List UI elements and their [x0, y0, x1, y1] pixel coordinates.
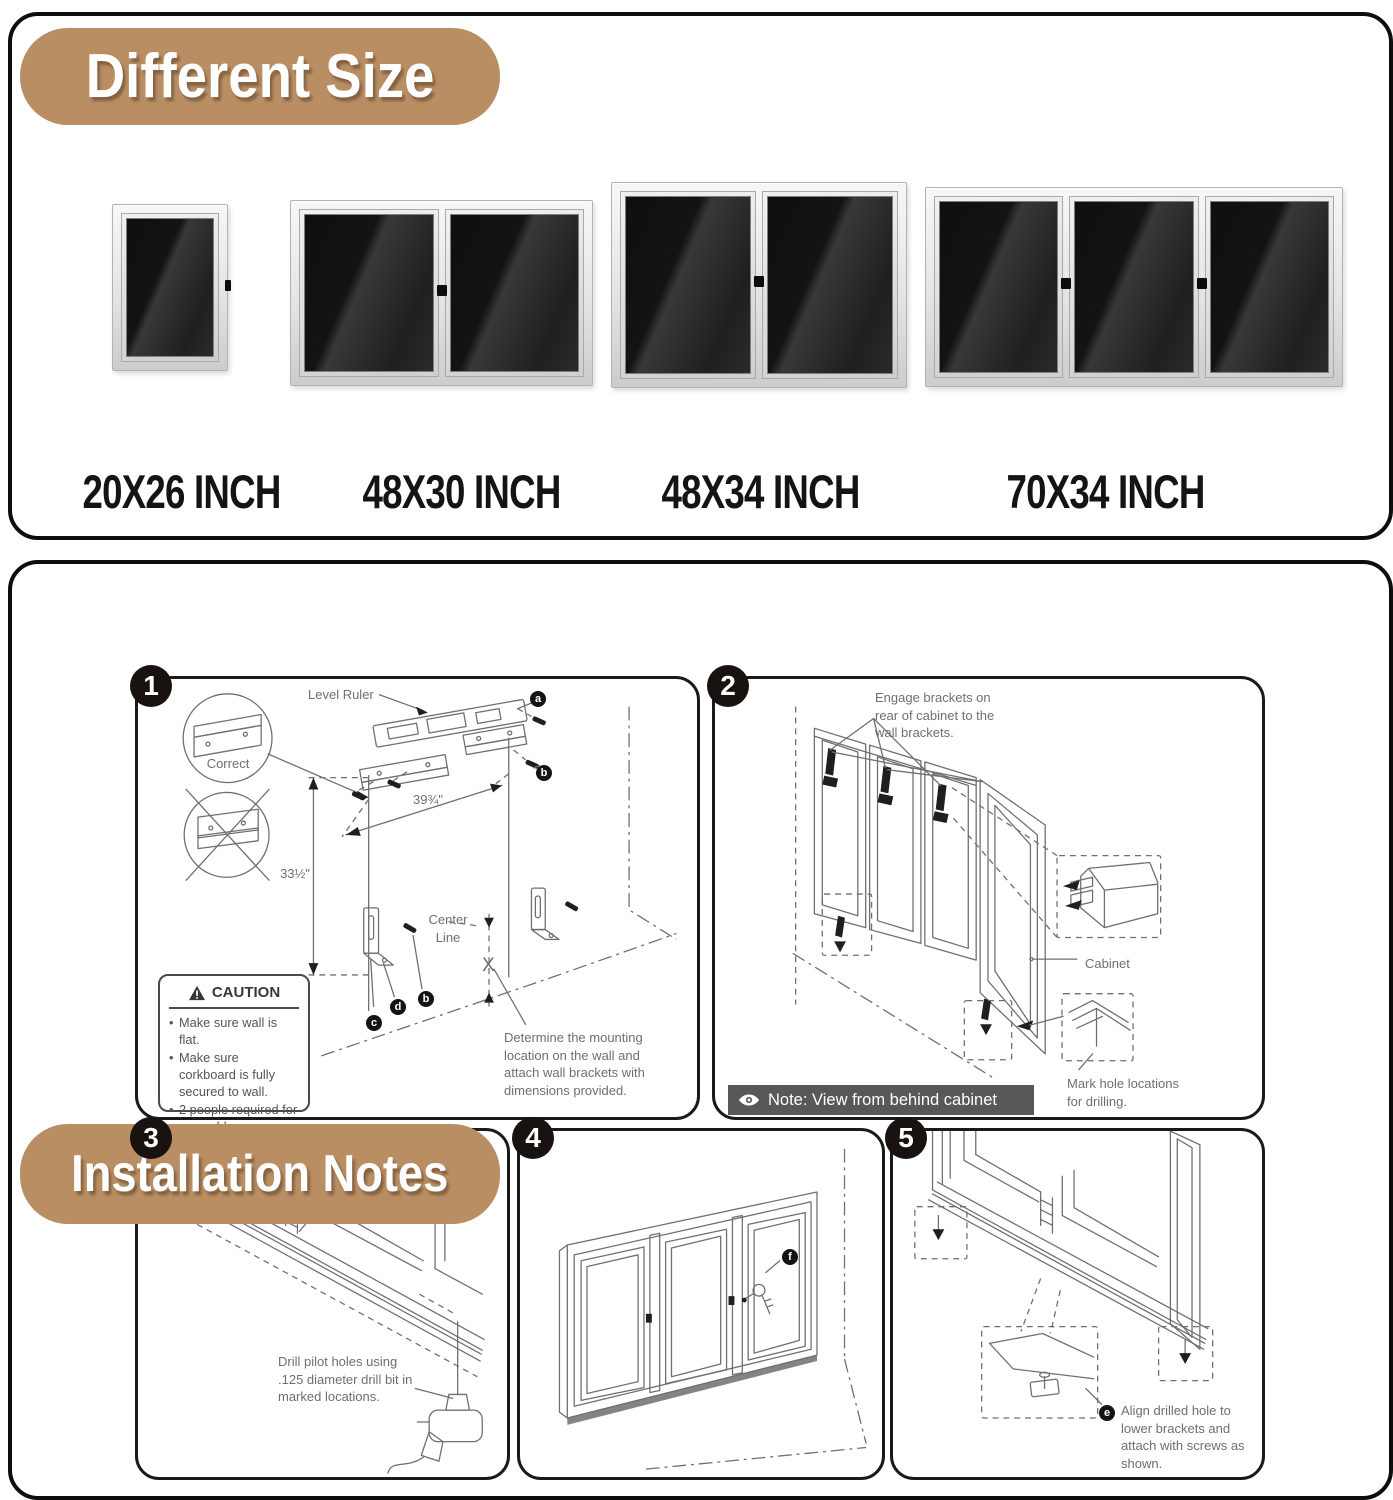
- bulletin-board: [1210, 201, 1329, 373]
- step2-diagram: [715, 679, 1262, 1117]
- level-ruler-label: Level Ruler: [308, 686, 380, 704]
- lock-icon: [1201, 278, 1207, 289]
- bulletin-board: [767, 196, 893, 374]
- install-step-2: 2: [712, 676, 1265, 1120]
- step-number-badge: 4: [512, 1117, 554, 1159]
- correct-label: Correct: [196, 755, 260, 773]
- size-label-48x34: 48X34 INCH: [662, 464, 843, 519]
- install-step-1: 1: [135, 676, 700, 1120]
- step-number-badge: 1: [130, 665, 172, 707]
- marker-b2: b: [418, 991, 434, 1007]
- bulletin-board: [939, 201, 1058, 373]
- cabinet-70x34: [925, 187, 1343, 387]
- cabinet-door: [121, 213, 219, 362]
- bulletin-board: [450, 214, 580, 372]
- marker-a: a: [530, 691, 546, 707]
- x-dimension: X: [482, 953, 495, 979]
- caution-title: CAUTION: [212, 984, 280, 1001]
- cabinet-door: [620, 191, 756, 379]
- view-note-text: Note: View from behind cabinet: [768, 1091, 997, 1110]
- lock-icon: [1065, 278, 1071, 289]
- bulletin-board: [1074, 201, 1193, 373]
- warning-triangle-icon: [188, 985, 206, 1001]
- different-size-title-badge: Different Size: [20, 28, 500, 125]
- product-infographic: Different Size: [0, 0, 1393, 1500]
- step1-note: Determine the mounting location on the w…: [504, 1029, 662, 1099]
- bulletin-board: [304, 214, 434, 372]
- view-note-bar: Note: View from behind cabinet: [728, 1085, 1034, 1115]
- marker-d: d: [390, 999, 406, 1015]
- bulletin-board: [126, 218, 214, 357]
- center-line-label: Center Line: [422, 911, 474, 946]
- width-dimension: 39¾": [396, 791, 460, 809]
- cabinet-door: [445, 209, 585, 377]
- step-number-badge: 2: [707, 665, 749, 707]
- cabinet-label: Cabinet: [1085, 955, 1130, 973]
- marker-c: c: [366, 1015, 382, 1031]
- caution-divider: [169, 1007, 299, 1009]
- eye-icon: [738, 1093, 760, 1107]
- cabinet-48x30: [290, 200, 593, 386]
- installation-title: Installation Notes: [71, 1144, 448, 1204]
- install-step-4: 4: [517, 1128, 885, 1480]
- step-number-badge: 5: [885, 1117, 927, 1159]
- install-step-5: 5: [890, 1128, 1265, 1480]
- size-label-20x26: 20X26 INCH: [83, 464, 264, 519]
- step-number-badge: 3: [130, 1117, 172, 1159]
- height-dimension: 33½": [266, 865, 310, 883]
- caution-box: CAUTION Make sure wall is flat. Make sur…: [158, 974, 310, 1112]
- caution-header: CAUTION: [169, 984, 299, 1001]
- caution-item: Make sure wall is flat.: [169, 1015, 299, 1048]
- caution-item: Make sure corkboard is fully secured to …: [169, 1050, 299, 1100]
- drill-note: Drill pilot holes using .125 diameter dr…: [278, 1353, 420, 1406]
- bulletin-board: [625, 196, 751, 374]
- marker-e: e: [1099, 1405, 1115, 1421]
- cabinet-20x26: [112, 204, 228, 371]
- different-size-section: Different Size: [8, 12, 1393, 540]
- marker-b: b: [536, 765, 552, 781]
- mark-holes-note: Mark hole locations for drilling.: [1067, 1075, 1181, 1110]
- cabinet-door: [1069, 196, 1198, 378]
- size-label-48x30: 48X30 INCH: [363, 464, 544, 519]
- lock-icon: [758, 276, 764, 287]
- installation-title-badge: Installation Notes: [20, 1124, 500, 1224]
- lock-icon: [225, 280, 231, 291]
- align-note: Align drilled hole to lower brackets and…: [1121, 1402, 1251, 1472]
- cabinet-door: [299, 209, 439, 377]
- cabinet-door: [1205, 196, 1334, 378]
- size-label-70x34: 70X34 INCH: [1007, 464, 1188, 519]
- marker-f: f: [782, 1249, 798, 1265]
- lock-icon: [441, 285, 447, 296]
- engage-note: Engage brackets on rear of cabinet to th…: [875, 689, 1005, 742]
- cabinet-door: [762, 191, 898, 379]
- cabinet-door: [934, 196, 1063, 378]
- step4-diagram: [520, 1131, 882, 1477]
- caution-list: Make sure wall is flat. Make sure corkbo…: [169, 1015, 299, 1135]
- cabinet-48x34: [611, 182, 907, 388]
- different-size-title: Different Size: [86, 41, 435, 112]
